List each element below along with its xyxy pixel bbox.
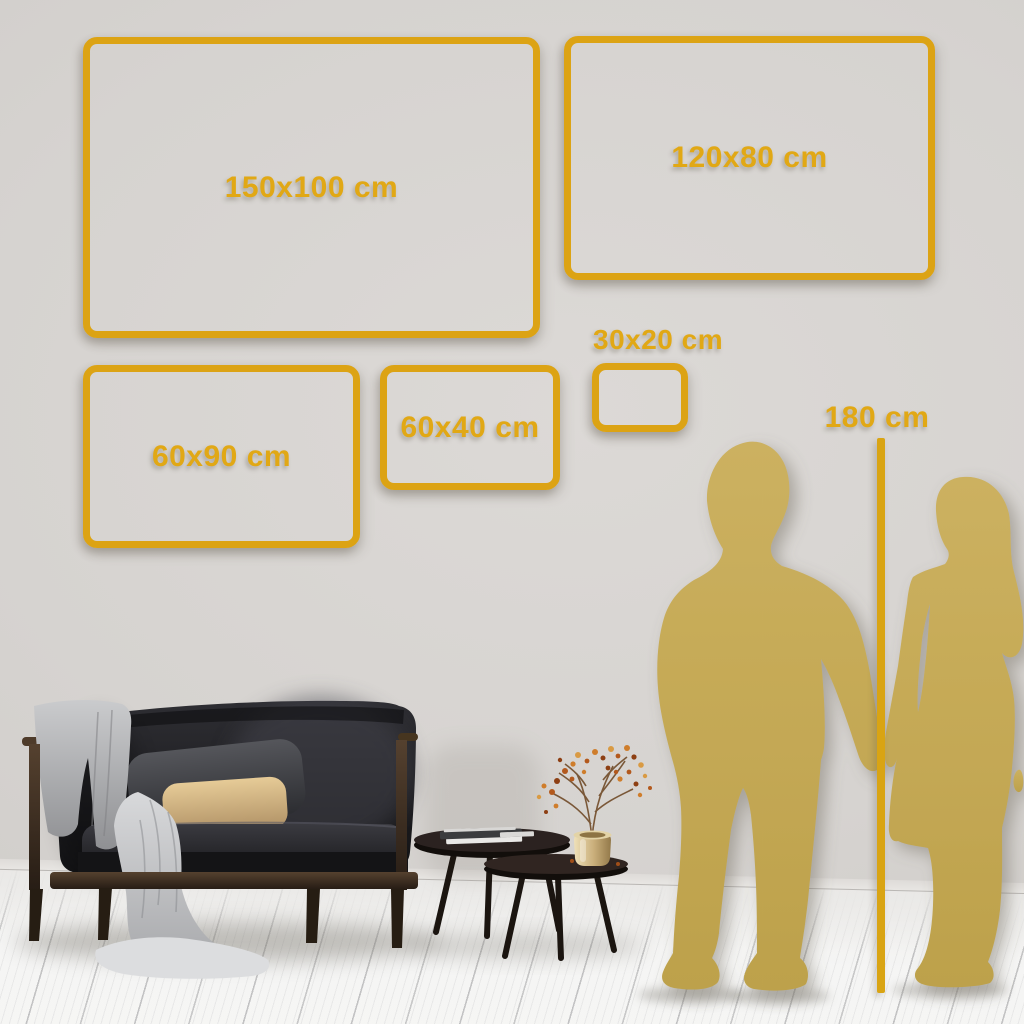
frame-30x20 <box>592 363 688 432</box>
size-guide-room-scene: 150x100 cm 120x80 cm 60x90 cm 60x40 cm 3… <box>0 0 1024 1024</box>
frame-60x40: 60x40 cm <box>380 365 560 490</box>
frame-120x80-label: 120x80 cm <box>671 143 827 173</box>
books <box>440 826 534 844</box>
gray-pillow <box>125 737 308 831</box>
height-reference-label: 180 cm <box>797 403 957 433</box>
frame-60x40-label: 60x40 cm <box>400 413 539 443</box>
frame-60x90-label: 60x90 cm <box>152 442 291 472</box>
sofa-shell <box>56 701 416 873</box>
woman-right-hand <box>1014 770 1024 792</box>
frame-150x100-label: 150x100 cm <box>225 173 399 203</box>
table-top-large <box>414 828 570 852</box>
frame-120x80: 120x80 cm <box>564 36 935 280</box>
wood-floor <box>0 868 1024 1024</box>
dried-branch <box>537 745 652 866</box>
height-reference-line <box>877 438 885 993</box>
beige-pillow <box>161 776 288 837</box>
berries <box>537 745 652 866</box>
frame-60x90: 60x90 cm <box>83 365 360 548</box>
frame-150x100: 150x100 cm <box>83 37 540 338</box>
frame-30x20-label: 30x20 cm <box>593 326 723 354</box>
gold-vase <box>574 831 612 867</box>
